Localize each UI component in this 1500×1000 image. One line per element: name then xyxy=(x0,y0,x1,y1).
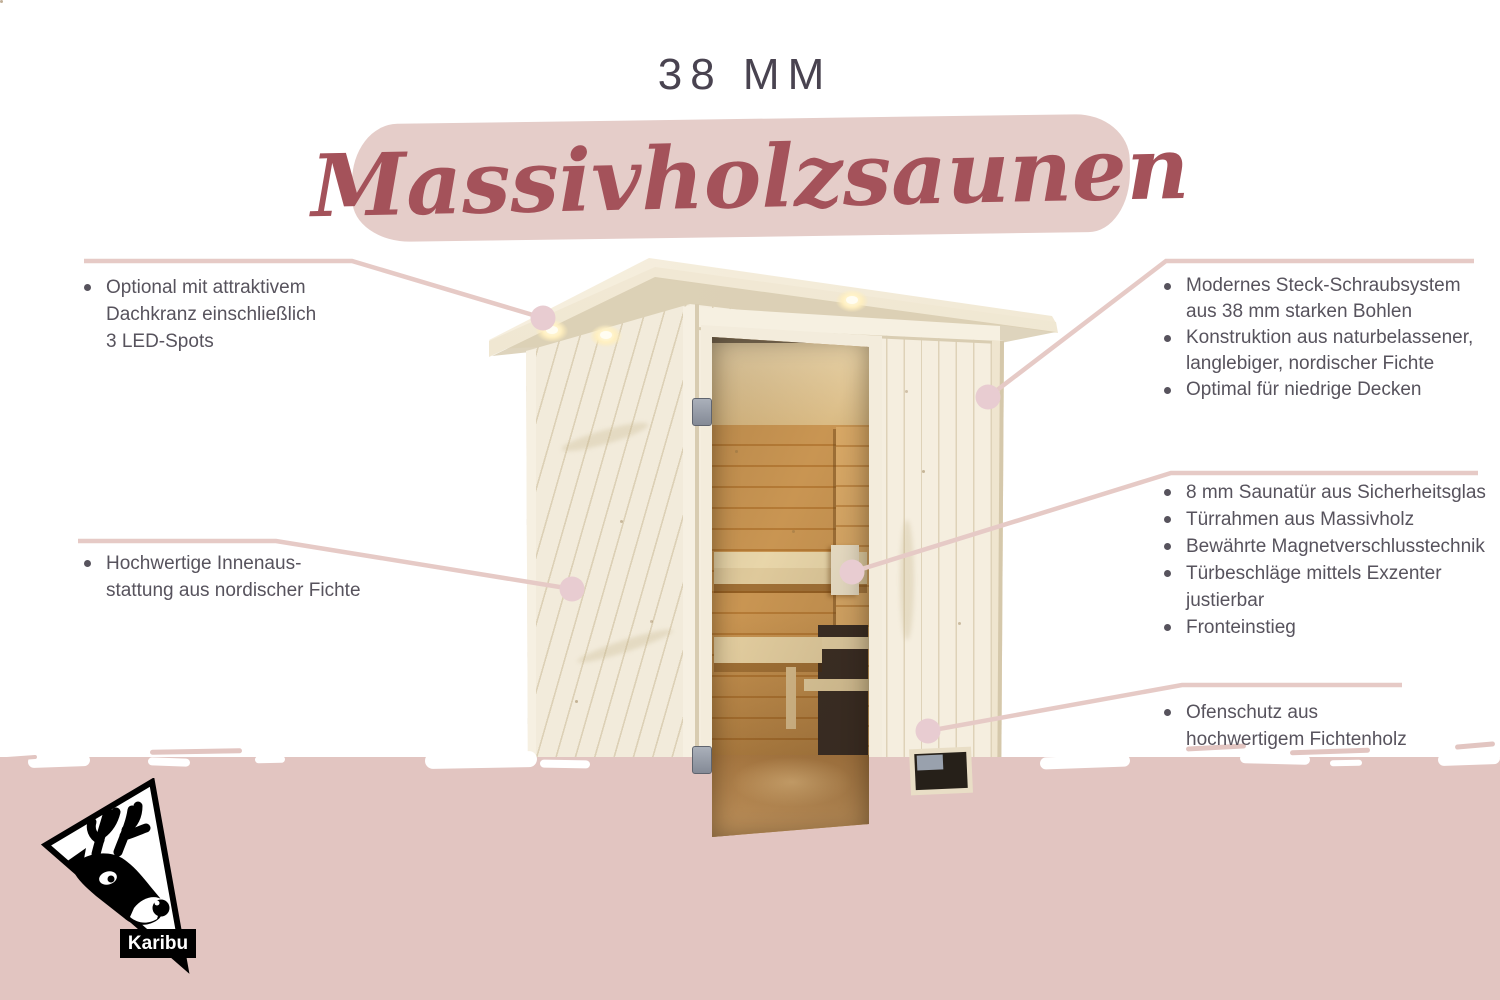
callout-row: hochwertigem Fichtenholz xyxy=(1164,726,1407,753)
bullet-icon xyxy=(1164,516,1171,523)
page-title: Massivholzsaunen xyxy=(299,117,1201,240)
callout-text: Optimal für niedrige Decken xyxy=(1186,379,1422,401)
led-spot xyxy=(846,296,858,304)
page-subtitle: 38 MM xyxy=(345,50,1145,100)
callout-stecksystem: Modernes Steck-Schraubsystem aus 38 mm s… xyxy=(1164,273,1473,403)
callout-dachkranz: Optional mit attraktivem Dachkranz einsc… xyxy=(84,274,316,355)
callout-text: 8 mm Saunatür aus Sicherheitsglas xyxy=(1186,482,1486,504)
callout-row: langlebiger, nordischer Fichte xyxy=(1164,351,1473,377)
callout-row: Türbeschläge mittels Exzenter xyxy=(1164,560,1486,587)
callout-text: Modernes Steck-Schraubsystem xyxy=(1186,275,1461,297)
callout-row: justierbar xyxy=(1164,587,1486,614)
led-spot xyxy=(600,331,612,339)
callout-text: Optional mit attraktivem xyxy=(106,277,306,299)
callout-text: hochwertigem Fichtenholz xyxy=(1186,729,1407,751)
led-spot xyxy=(546,326,558,334)
callout-text: Ofenschutz aus xyxy=(1186,702,1318,724)
callout-row: 3 LED-Spots xyxy=(84,328,316,355)
callout-ofenschutz: Ofenschutz aus hochwertigem Fichtenholz xyxy=(1164,699,1407,753)
bullet-icon xyxy=(1164,570,1171,577)
callout-text: 3 LED-Spots xyxy=(106,331,214,353)
callout-row: Hochwertige Innenaus- xyxy=(84,550,361,577)
callout-row: Optimal für niedrige Decken xyxy=(1164,377,1473,403)
bullet-icon xyxy=(1164,543,1171,550)
bullet-icon xyxy=(1164,709,1171,716)
callout-row: Fronteinstieg xyxy=(1164,614,1486,641)
sauna-door-glass xyxy=(712,337,869,838)
callout-text: Türbeschläge mittels Exzenter xyxy=(1186,563,1442,585)
callout-text: justierbar xyxy=(1186,590,1264,612)
callout-row: 8 mm Saunatür aus Sicherheitsglas xyxy=(1164,479,1486,506)
callout-row: stattung aus nordischer Fichte xyxy=(84,577,361,604)
callout-row: Konstruktion aus naturbelassener, xyxy=(1164,325,1473,351)
callout-text: Hochwertige Innenaus- xyxy=(106,553,301,575)
bullet-icon xyxy=(1164,489,1171,496)
bullet-icon xyxy=(84,560,91,567)
callout-text: Konstruktion aus naturbelassener, xyxy=(1186,327,1473,349)
callout-row: Optional mit attraktivem xyxy=(84,274,316,301)
vent-bracket xyxy=(917,754,944,770)
wood-knots xyxy=(0,0,3,3)
callout-row: Ofenschutz aus xyxy=(1164,699,1407,726)
door-glass-tint xyxy=(712,337,869,838)
logo-wordmark: Karibu xyxy=(120,929,196,958)
callout-row: Modernes Steck-Schraubsystem xyxy=(1164,273,1473,299)
bullet-icon xyxy=(84,284,91,291)
callout-row: Bewährte Magnetverschlusstechnik xyxy=(1164,533,1486,560)
callout-text: stattung aus nordischer Fichte xyxy=(106,580,361,602)
door-hinge-bottom xyxy=(692,746,712,774)
bullet-icon xyxy=(1164,283,1171,290)
bullet-icon xyxy=(1164,387,1171,394)
callout-row: aus 38 mm starken Bohlen xyxy=(1164,299,1473,325)
bullet-icon xyxy=(1164,624,1171,631)
infographic-page: Karibu xyxy=(0,0,1500,1000)
callout-text: langlebiger, nordischer Fichte xyxy=(1186,353,1434,375)
callout-text: Fronteinstieg xyxy=(1186,617,1296,639)
door-hinge-top xyxy=(692,398,712,426)
callout-text: Türrahmen aus Massivholz xyxy=(1186,509,1414,531)
callout-text: aus 38 mm starken Bohlen xyxy=(1186,301,1412,323)
callout-row: Dachkranz einschließlich xyxy=(84,301,316,328)
callout-saunatuer: 8 mm Saunatür aus Sicherheitsglas Türrah… xyxy=(1164,479,1486,641)
callout-row: Türrahmen aus Massivholz xyxy=(1164,506,1486,533)
callout-innenausstattung: Hochwertige Innenaus- stattung aus nordi… xyxy=(84,550,361,604)
callout-text: Bewährte Magnetverschlusstechnik xyxy=(1186,536,1485,558)
callout-text: Dachkranz einschließlich xyxy=(106,304,316,326)
bullet-icon xyxy=(1164,335,1171,342)
